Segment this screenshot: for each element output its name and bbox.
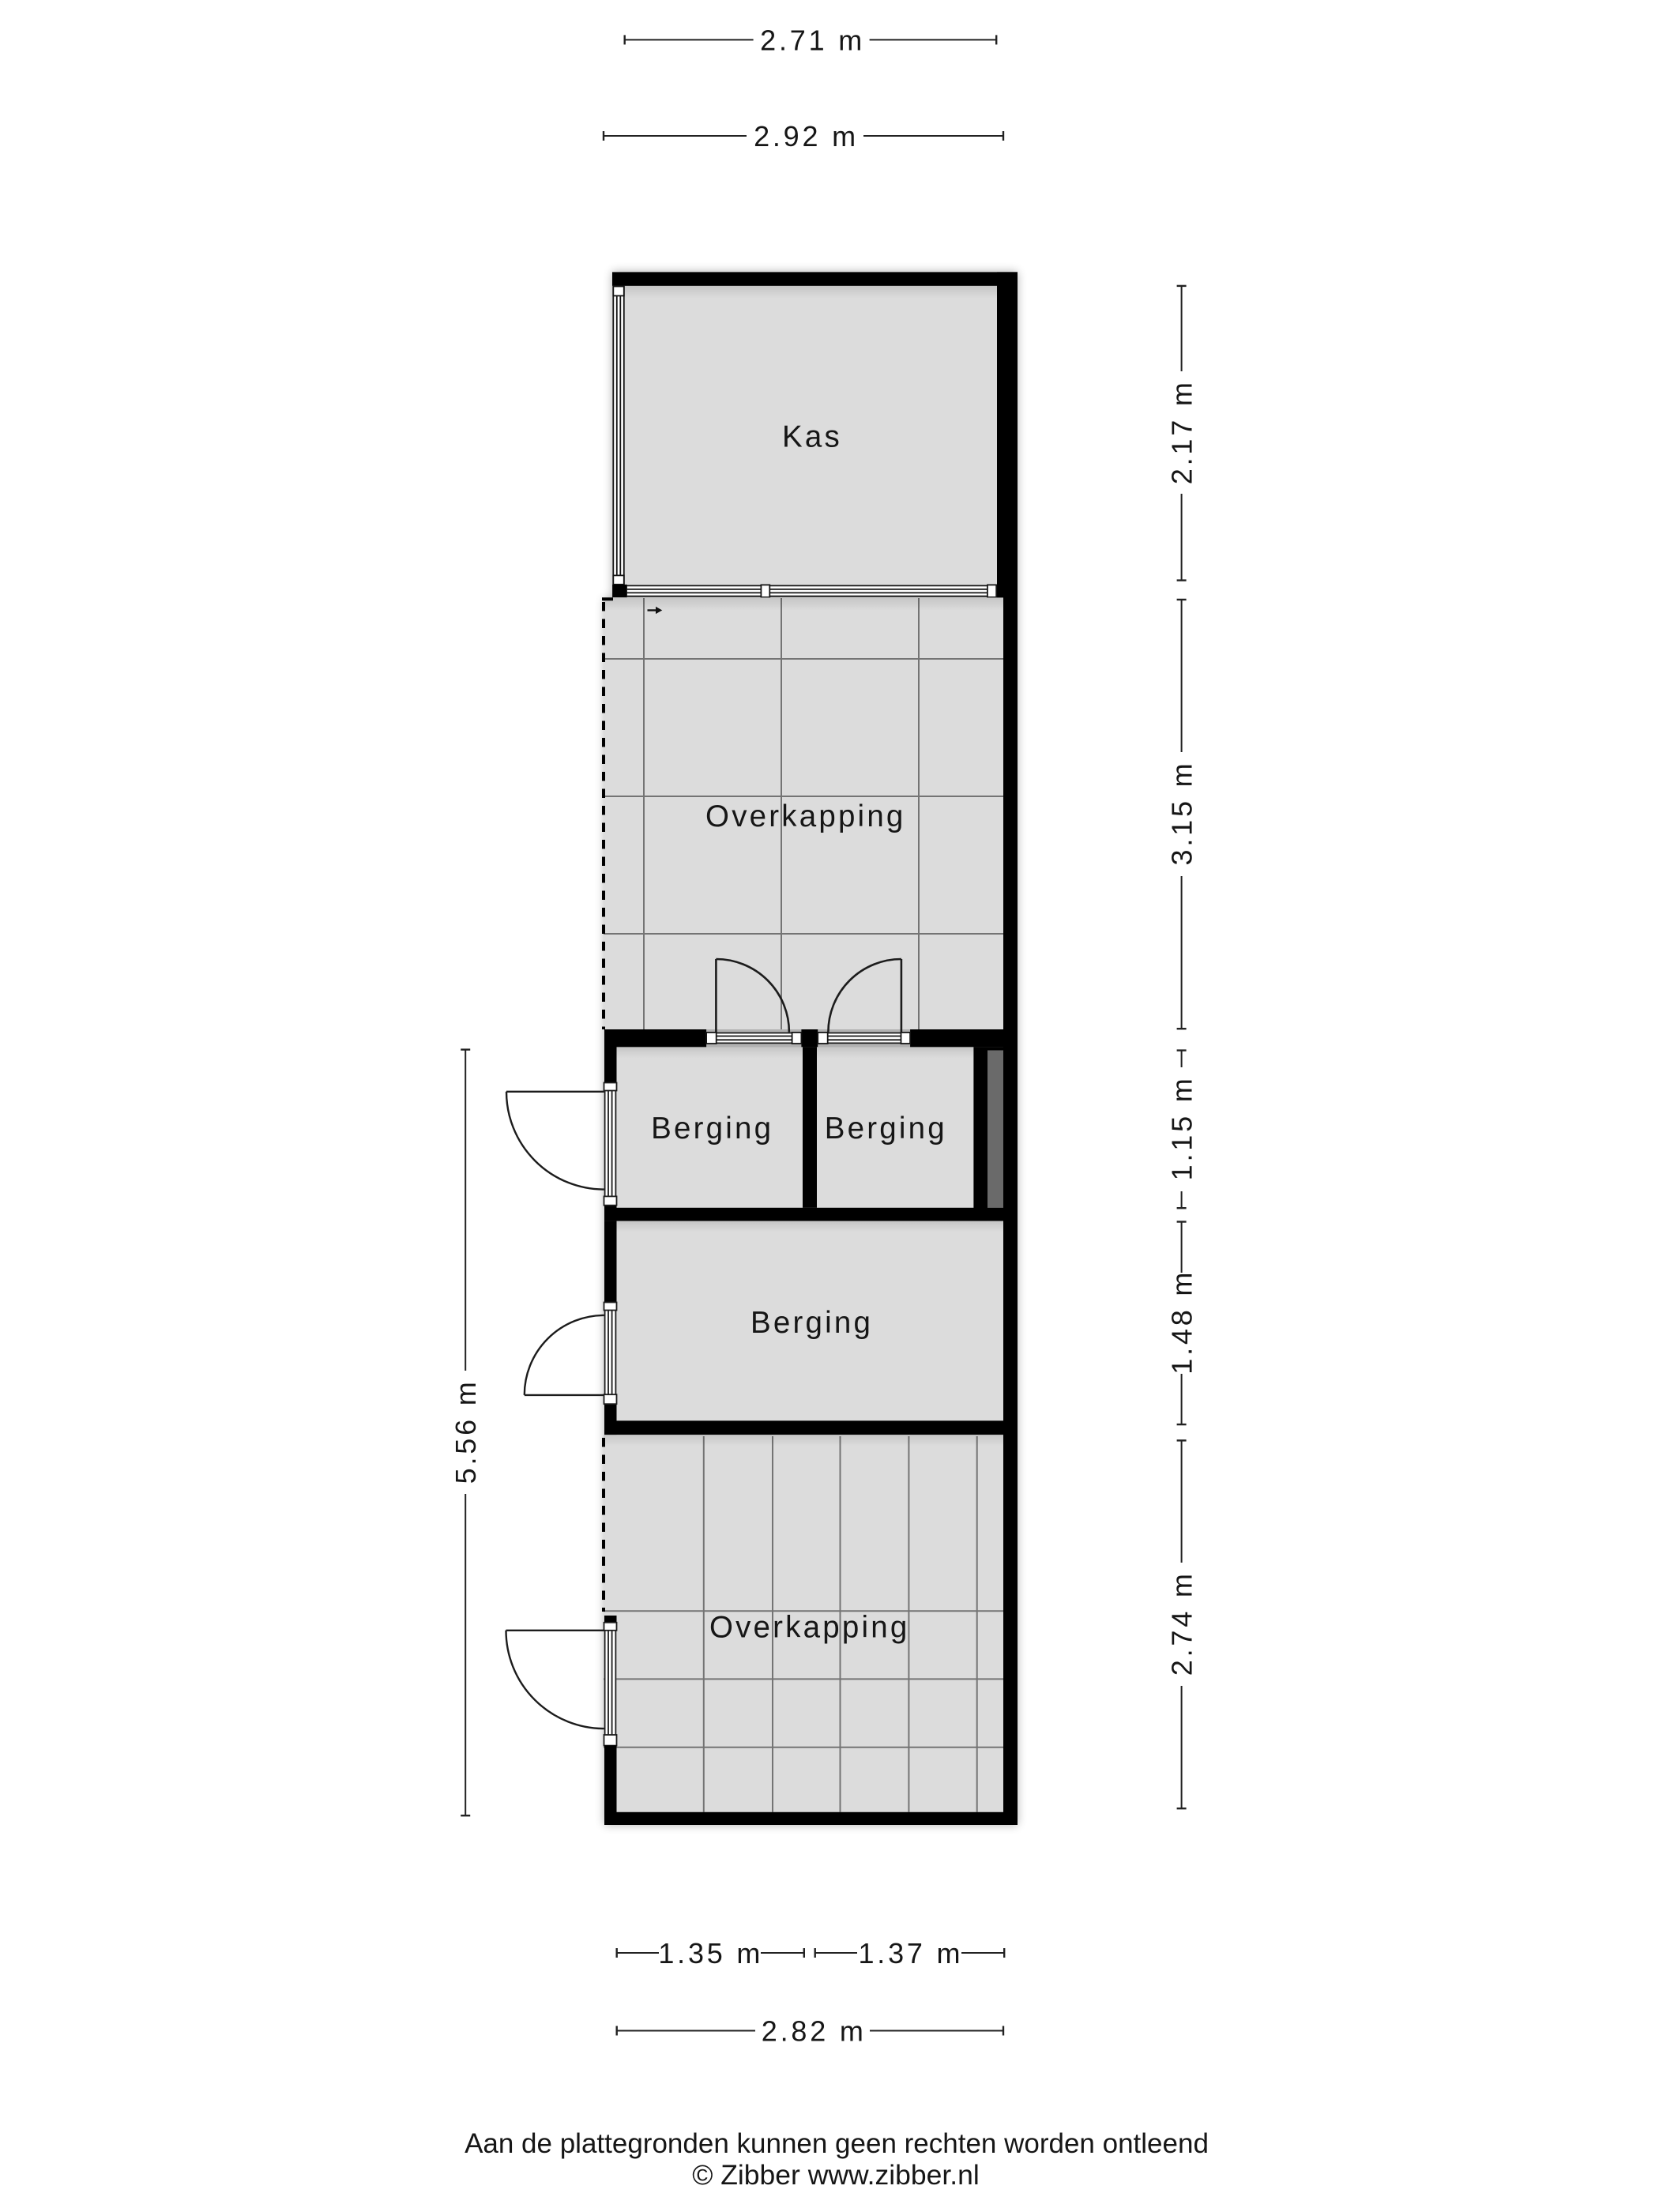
svg-text:Berging: Berging xyxy=(651,1112,773,1145)
svg-text:2.82 m: 2.82 m xyxy=(762,2015,867,2048)
svg-text:5.56 m: 5.56 m xyxy=(450,1379,482,1484)
svg-text:1.35 m: 1.35 m xyxy=(658,1937,763,1969)
svg-text:Berging: Berging xyxy=(825,1112,947,1145)
svg-text:1.15 m: 1.15 m xyxy=(1166,1075,1198,1180)
svg-text:2.92 m: 2.92 m xyxy=(754,120,859,152)
svg-text:Overkapping: Overkapping xyxy=(705,799,906,833)
svg-text:Overkapping: Overkapping xyxy=(709,1610,910,1644)
svg-text:© Zibber www.zibber.nl: © Zibber www.zibber.nl xyxy=(692,2159,980,2191)
svg-text:2.17 m: 2.17 m xyxy=(1166,379,1198,484)
svg-text:1.37 m: 1.37 m xyxy=(858,1937,963,1969)
svg-text:3.15 m: 3.15 m xyxy=(1166,761,1198,866)
svg-text:Berging: Berging xyxy=(750,1306,873,1340)
svg-text:1.48 m: 1.48 m xyxy=(1166,1270,1198,1375)
svg-text:2.74 m: 2.74 m xyxy=(1166,1571,1198,1676)
svg-text:2.71 m: 2.71 m xyxy=(760,24,865,56)
svg-text:Aan de plattegronden kunnen ge: Aan de plattegronden kunnen geen rechten… xyxy=(465,2128,1209,2159)
svg-text:Kas: Kas xyxy=(782,420,842,454)
